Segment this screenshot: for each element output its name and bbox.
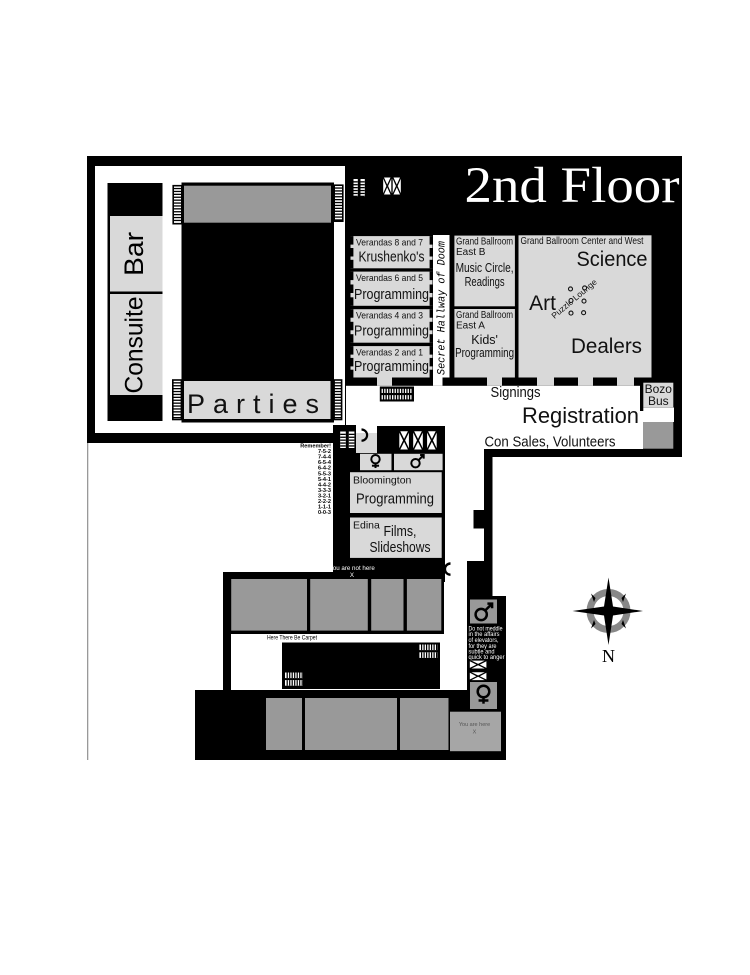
- svg-text:Grand Ballroom: Grand Ballroom: [456, 237, 513, 248]
- svg-text:Grand Ballroom: Grand Ballroom: [456, 310, 513, 321]
- svg-text:Kids': Kids': [471, 333, 498, 347]
- svg-text:Programming: Programming: [354, 359, 429, 375]
- svg-text:Secret Hallway of Doom: Secret Hallway of Doom: [437, 241, 449, 375]
- svg-text:Programming: Programming: [354, 324, 429, 340]
- svg-text:Con Sales, Volunteers: Con Sales, Volunteers: [485, 435, 616, 451]
- svg-text:2nd Floor: 2nd Floor: [465, 158, 680, 214]
- svg-text:East A: East A: [456, 321, 485, 332]
- svg-text:Verandas 8 and 7: Verandas 8 and 7: [356, 238, 423, 249]
- svg-text:Signings: Signings: [491, 385, 541, 401]
- svg-text:Programming: Programming: [455, 346, 514, 360]
- svg-text:Bloomington: Bloomington: [353, 475, 412, 487]
- svg-text:East B: East B: [456, 247, 486, 258]
- svg-text:X: X: [350, 572, 354, 579]
- svg-text:Music Circle,: Music Circle,: [456, 261, 514, 275]
- svg-text:Programming: Programming: [356, 491, 434, 508]
- svg-text:N: N: [602, 646, 615, 666]
- svg-text:Parties: Parties: [187, 389, 327, 419]
- svg-text:Science: Science: [577, 248, 648, 271]
- svg-text:You are not here: You are not here: [329, 565, 375, 572]
- svg-text:You are here: You are here: [459, 722, 490, 728]
- svg-text:Verandas 6 and 5: Verandas 6 and 5: [356, 273, 423, 284]
- svg-text:Films,: Films,: [384, 523, 417, 540]
- svg-text:Slideshows: Slideshows: [370, 539, 431, 556]
- svg-text:Verandas 4 and 3: Verandas 4 and 3: [356, 311, 423, 322]
- svg-text:Grand Ballroom Center and West: Grand Ballroom Center and West: [521, 235, 644, 247]
- svg-text:Here There Be Carpet: Here There Be Carpet: [267, 635, 317, 642]
- svg-text:Dealers: Dealers: [571, 335, 642, 358]
- svg-text:quick to anger: quick to anger: [469, 654, 505, 661]
- svg-text:Bar: Bar: [119, 232, 149, 276]
- svg-text:Programming: Programming: [354, 287, 429, 303]
- svg-text:Consuite: Consuite: [121, 297, 149, 394]
- svg-text:Bus: Bus: [648, 394, 669, 408]
- svg-text:Verandas 2 and 1: Verandas 2 and 1: [356, 348, 423, 359]
- svg-text:X: X: [473, 730, 477, 736]
- svg-text:Edina: Edina: [353, 520, 380, 532]
- svg-text:Krushenko's: Krushenko's: [359, 249, 425, 265]
- svg-text:Readings: Readings: [465, 275, 505, 289]
- svg-text:0-0-3: 0-0-3: [318, 510, 331, 516]
- svg-text:Registration: Registration: [522, 403, 639, 428]
